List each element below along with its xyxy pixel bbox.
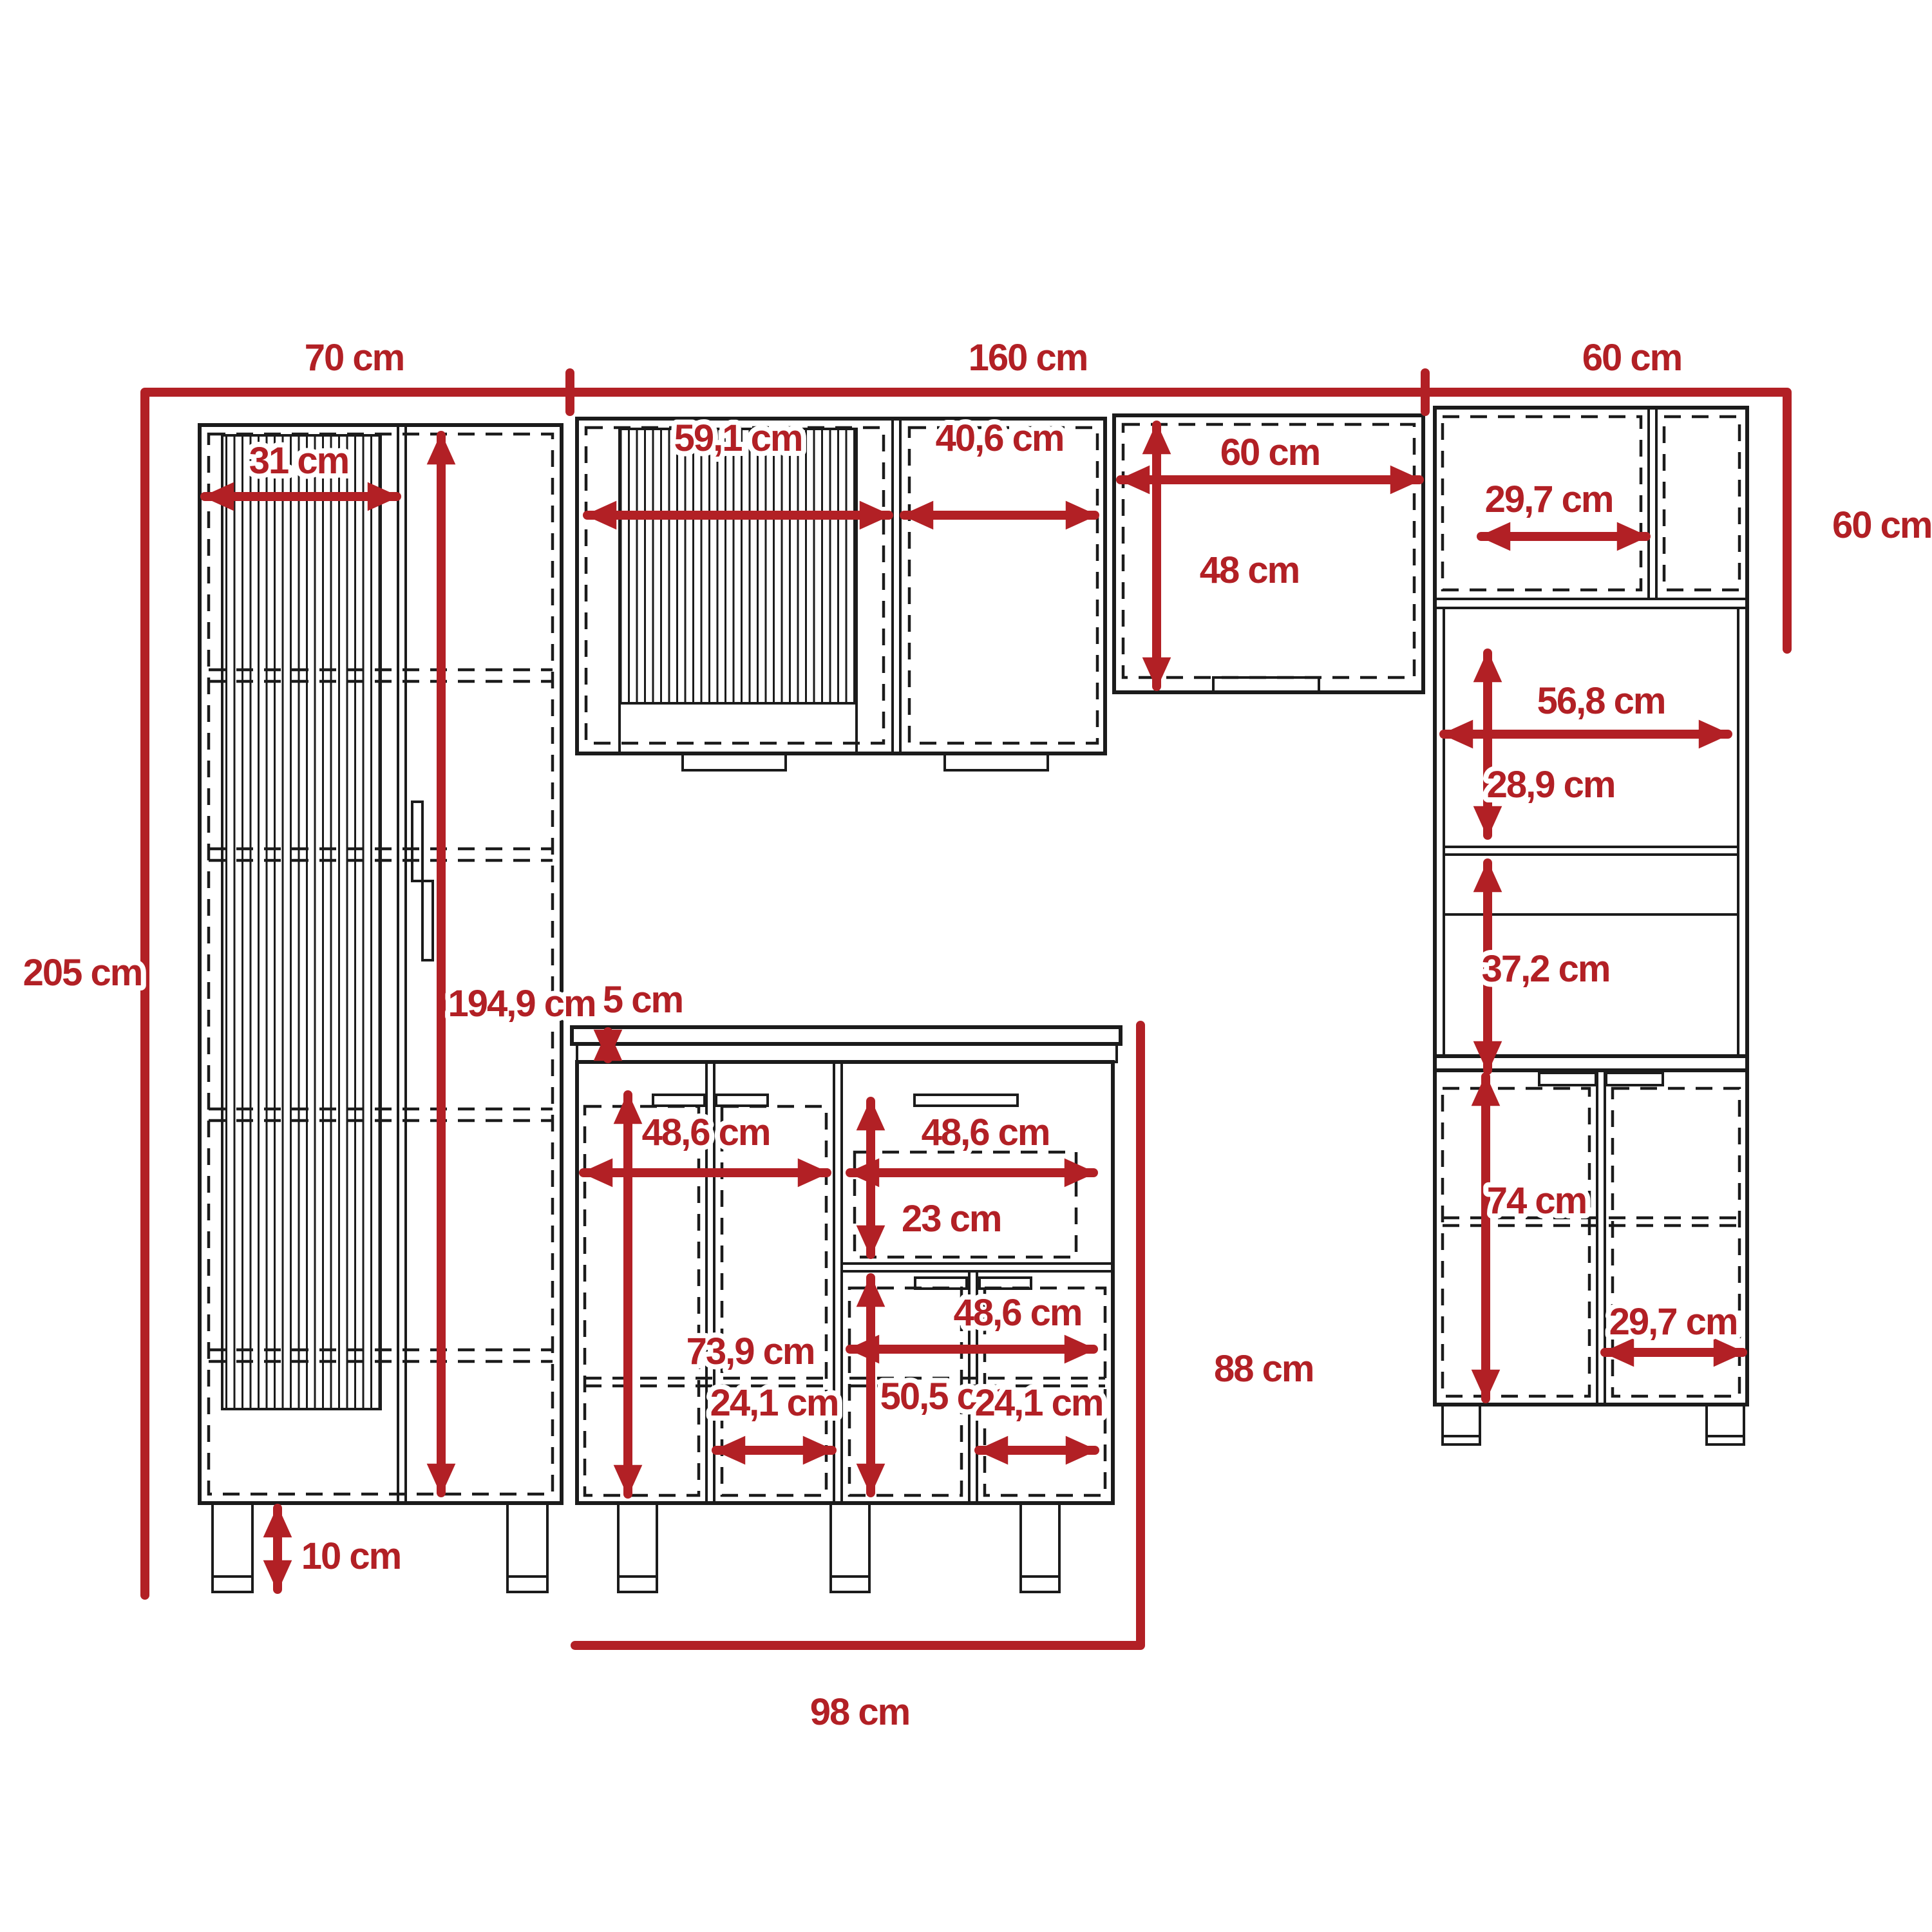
wall-door1-slat-texture [620, 429, 857, 703]
dim-label-48cm: 48 cm [1200, 549, 1299, 591]
dim-label-48-6cm-right: 48,6 cm [954, 1292, 1082, 1334]
base-left-door1-inset [585, 1106, 699, 1495]
dim-label-205cm: 205 cm [23, 952, 142, 994]
base-left-handle-2 [716, 1095, 768, 1106]
wall-door2-inset-dashed [909, 428, 1097, 743]
dim-label-10cm: 10 cm [301, 1535, 401, 1577]
base-drawer-bottom-divider [842, 1264, 1113, 1271]
wall-cabinet-3-handle [1213, 677, 1319, 692]
base-section-divider [834, 1062, 842, 1503]
wall-cabinet-door-divider [893, 419, 900, 753]
dim-label-60cm-top: 60 cm [1582, 337, 1681, 379]
base-drawer-handle [914, 1095, 1018, 1106]
dim-label-29-7cm-top: 29,7 cm [1485, 478, 1613, 520]
dim-label-31cm: 31 cm [249, 440, 348, 482]
dim-label-59-1cm: 59,1 cm [674, 417, 802, 459]
dim-label-56-8cm: 56,8 cm [1537, 680, 1665, 722]
dim-label-73-9cm: 73,9 cm [687, 1331, 815, 1372]
dim-label-24-1cm-right: 24,1 cm [975, 1382, 1103, 1424]
right-lower-handle-left [1539, 1073, 1596, 1085]
dimension-lines [145, 373, 1787, 1645]
dim-label-40-6cm: 40,6 cm [936, 417, 1064, 459]
dim-label-29-7cm-lower: 29,7 cm [1609, 1301, 1738, 1343]
dim-label-98cm: 98 cm [810, 1691, 909, 1733]
right-lower-top-board [1435, 1056, 1747, 1070]
dim-label-160cm: 160 cm [969, 337, 1088, 379]
dim-label-48-6cm-left: 48,6 cm [642, 1112, 770, 1153]
right-lower-door1-inset [1443, 1088, 1589, 1396]
dim-label-70cm: 70 cm [305, 337, 404, 379]
tall-cabinet-door-divider [398, 425, 406, 1503]
right-upper-door2-inset [1664, 417, 1739, 590]
dim-label-60cm-right: 60 cm [1832, 504, 1931, 546]
dim-label-194-9cm: 194,9 cm [448, 983, 595, 1025]
right-shelf-board-1 [1444, 847, 1738, 855]
dim-label-28-9cm: 28,9 cm [1487, 764, 1615, 806]
dim-label-24-1cm-left: 24,1 cm [710, 1382, 838, 1424]
dim-label-5cm: 5 cm [603, 979, 683, 1021]
wall-door1-handle [683, 753, 786, 770]
base-left-door2-inset [722, 1106, 826, 1495]
kitchen-dimension-diagram: 70 cm 160 cm 60 cm 205 cm 60 cm 31 cm 19… [0, 0, 1932, 1932]
dim-label-60cm-wall: 60 cm [1220, 431, 1320, 473]
tall-cabinet-handle-upper [412, 802, 422, 881]
dim-label-23cm: 23 cm [902, 1198, 1001, 1240]
right-unit-legs [1443, 1405, 1744, 1444]
countertop-slab [572, 1027, 1121, 1044]
right-unit-top-section-bottom [1435, 599, 1747, 608]
tall-cabinet-slat-door-texture [222, 435, 381, 1409]
wall-door2-handle [945, 753, 1048, 770]
countertop-band [577, 1044, 1117, 1062]
dim-label-37-2cm: 37,2 cm [1482, 948, 1610, 990]
right-lower-handle-right [1606, 1073, 1663, 1085]
dim-label-88cm: 88 cm [1214, 1348, 1313, 1390]
tall-cabinet-handle-lower [422, 881, 433, 960]
dim-label-74cm: 74 cm [1487, 1180, 1586, 1222]
right-upper-door-divider [1649, 408, 1656, 599]
base-cabinet-legs [618, 1503, 1059, 1592]
dim-label-48-6cm-drawer: 48,6 cm [922, 1112, 1050, 1153]
base-left-handle-1 [653, 1095, 705, 1106]
